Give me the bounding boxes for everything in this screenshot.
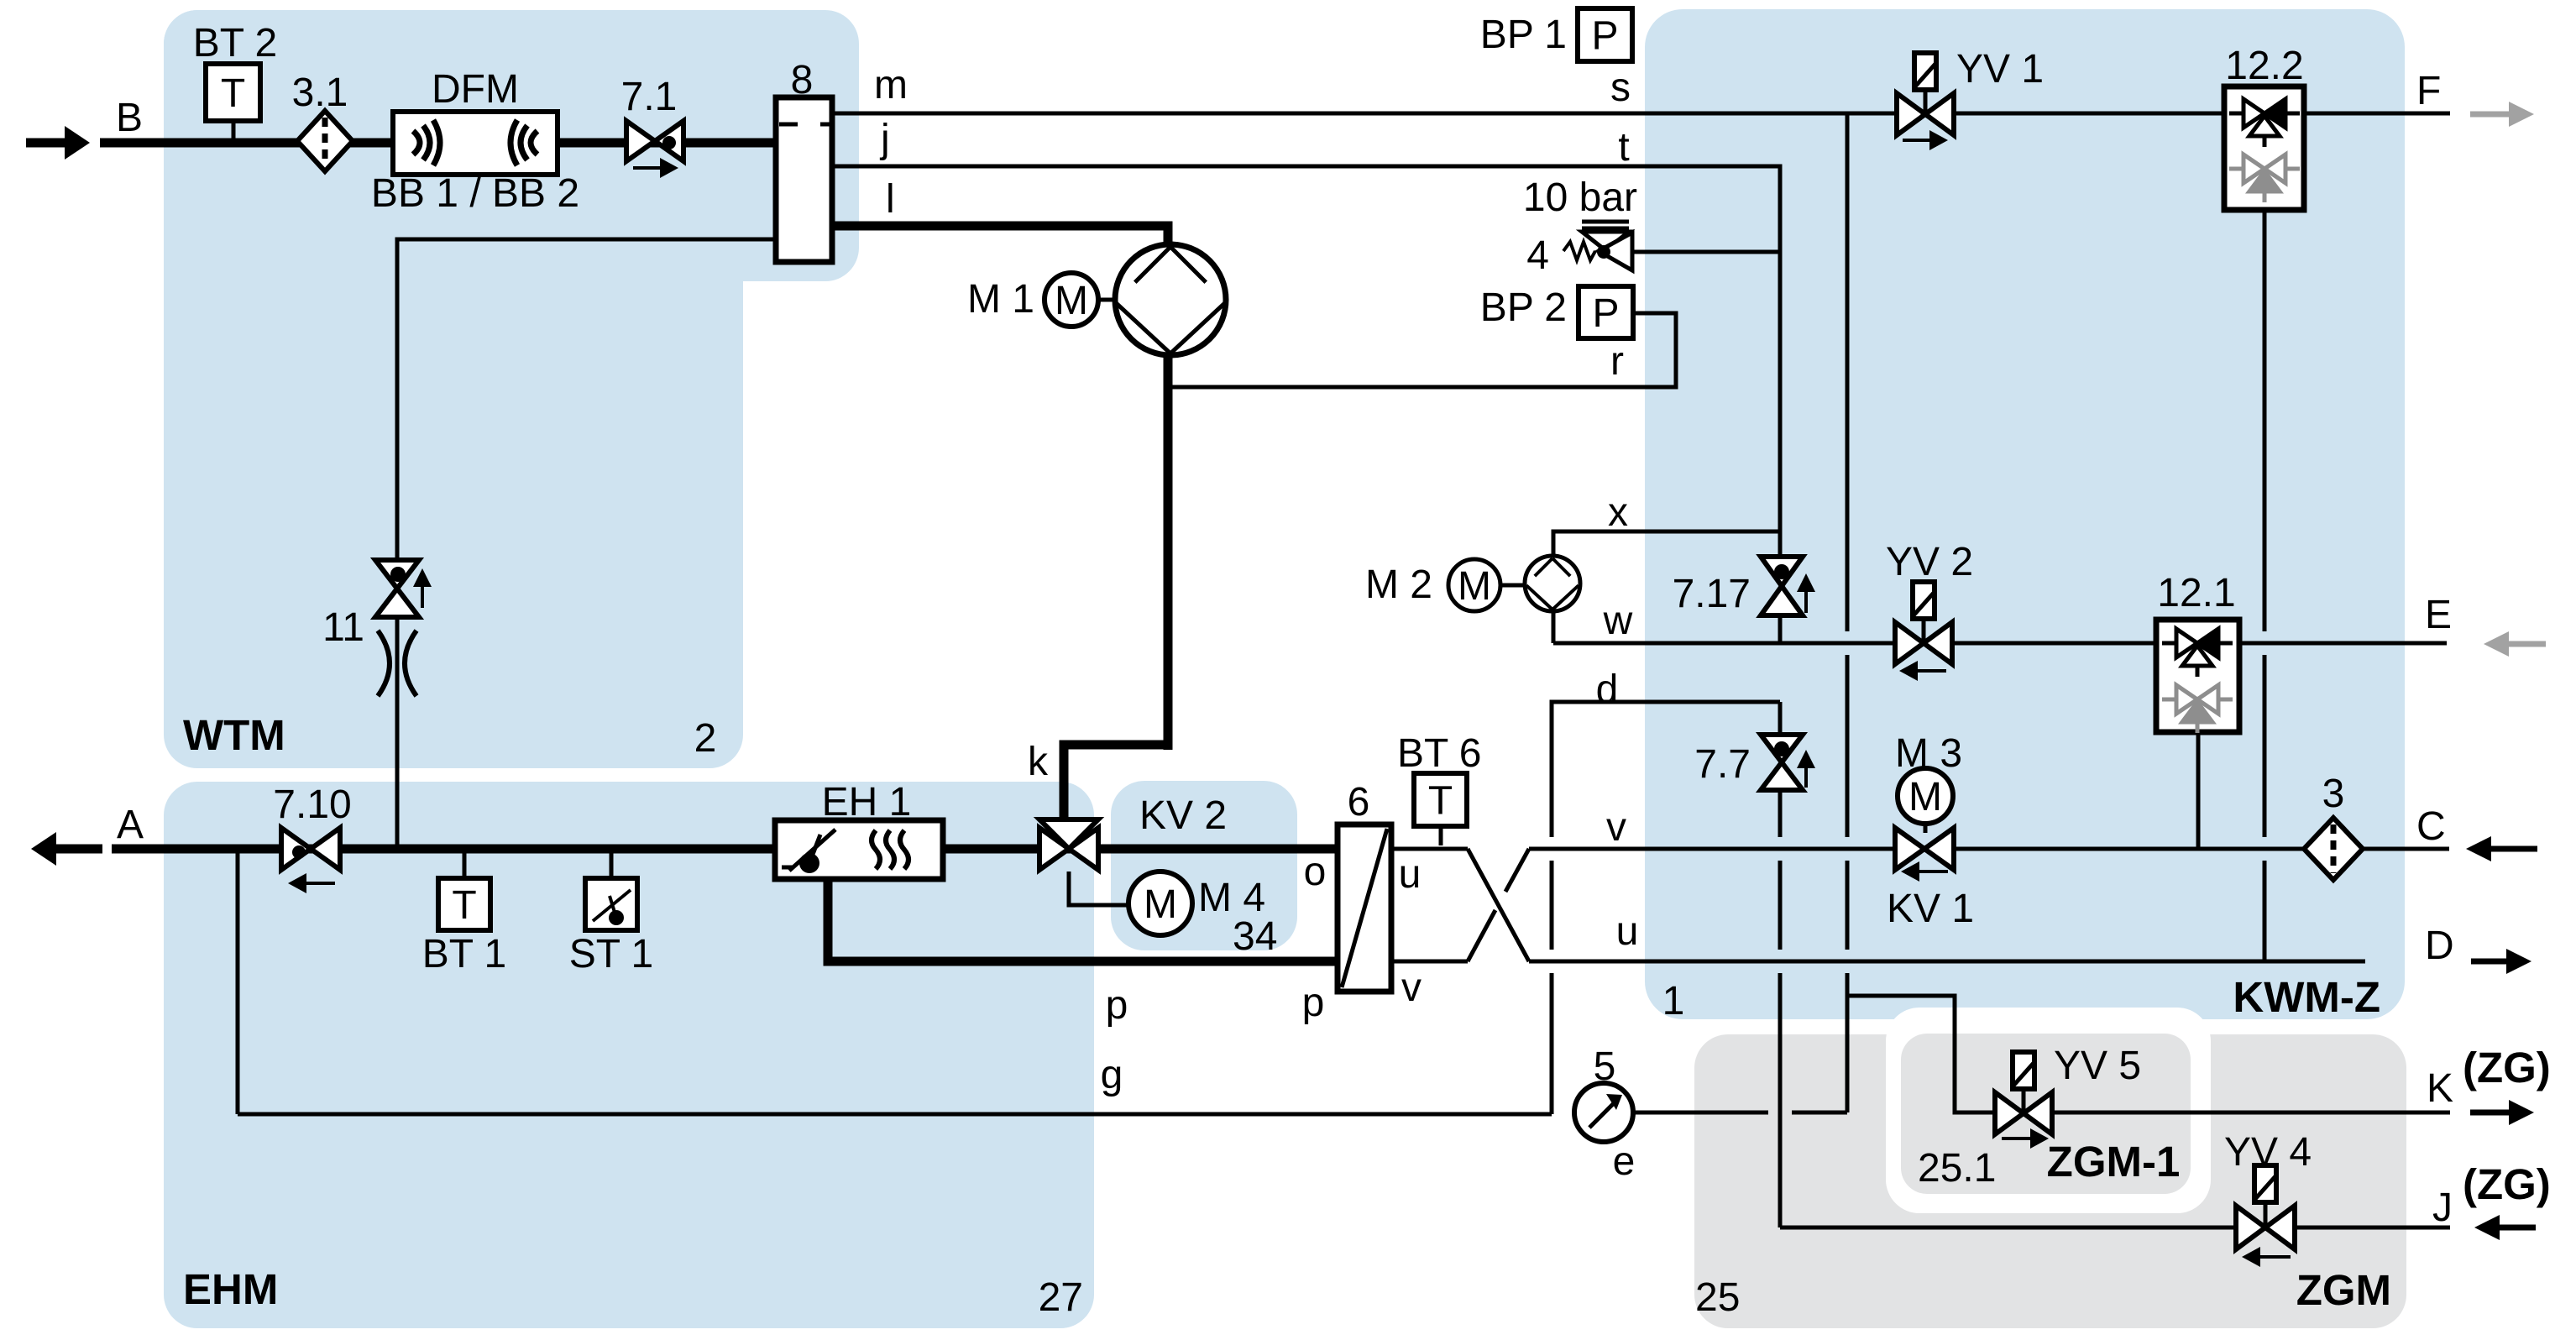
svg-text:m: m [874,63,908,107]
svg-text:4: 4 [1526,233,1549,278]
svg-text:WTM: WTM [183,711,285,759]
svg-text:M: M [1144,882,1177,927]
svg-text:DFM: DFM [432,67,519,112]
svg-text:EHM: EHM [183,1265,278,1313]
svg-text:w: w [1603,599,1633,643]
svg-text:KWM-Z: KWM-Z [2233,973,2380,1021]
svg-text:u: u [1399,852,1422,897]
svg-text:x: x [1608,490,1628,535]
svg-text:E: E [2425,593,2452,637]
svg-text:M 3: M 3 [1895,731,1962,776]
svg-text:e: e [1613,1139,1636,1184]
svg-text:l: l [886,177,895,222]
svg-text:7.1: 7.1 [621,75,678,119]
svg-text:u: u [1616,909,1639,954]
svg-text:j: j [879,117,890,161]
svg-text:M 1: M 1 [967,277,1034,322]
svg-text:B: B [116,96,143,140]
svg-text:8: 8 [791,58,814,102]
svg-text:P: P [1592,291,1619,336]
svg-text:12.1: 12.1 [2157,571,2235,615]
svg-text:2: 2 [694,716,717,761]
svg-text:1: 1 [1662,979,1685,1023]
svg-text:BT 6: BT 6 [1397,731,1482,776]
svg-text:25.1: 25.1 [1918,1146,1996,1191]
svg-text:(ZG): (ZG) [2463,1160,2551,1208]
svg-text:BP 2: BP 2 [1480,285,1567,330]
svg-text:J: J [2432,1186,2453,1230]
svg-text:M: M [1458,564,1491,609]
svg-text:M: M [1055,279,1088,323]
svg-text:KV 1: KV 1 [1887,887,1974,931]
svg-text:(ZG): (ZG) [2463,1044,2551,1091]
svg-text:YV 4: YV 4 [2224,1130,2312,1175]
svg-text:27: 27 [1039,1275,1083,1320]
svg-text:g: g [1101,1053,1123,1097]
svg-text:M 2: M 2 [1365,563,1432,607]
svg-text:7.17: 7.17 [1673,572,1751,616]
svg-text:T: T [221,71,245,116]
svg-text:ST 1: ST 1 [569,932,654,976]
svg-text:10 bar: 10 bar [1523,175,1637,220]
svg-text:p: p [1106,983,1128,1028]
svg-text:K: K [2427,1066,2453,1111]
svg-text:34: 34 [1233,914,1277,959]
svg-text:ZGM-1: ZGM-1 [2047,1138,2181,1186]
svg-text:BP 1: BP 1 [1480,13,1567,57]
svg-text:ZGM: ZGM [2296,1266,2391,1314]
svg-text:D: D [2425,924,2454,968]
svg-text:C: C [2416,804,2446,849]
svg-text:t: t [1618,125,1629,170]
svg-text:11: 11 [322,605,364,650]
svg-text:T: T [452,883,476,928]
svg-text:k: k [1028,740,1049,784]
svg-text:P: P [1591,14,1618,59]
svg-text:7.7: 7.7 [1694,742,1751,787]
svg-text:v: v [1606,805,1626,850]
svg-text:EH 1: EH 1 [822,780,912,824]
svg-text:BT 2: BT 2 [193,21,278,65]
svg-text:YV 1: YV 1 [1956,47,2044,92]
svg-text:KV 2: KV 2 [1139,793,1227,838]
svg-text:BT 1: BT 1 [422,932,507,976]
svg-text:p: p [1302,981,1325,1025]
svg-text:6: 6 [1348,780,1370,824]
svg-text:5: 5 [1594,1044,1616,1089]
svg-text:BB 1 / BB 2: BB 1 / BB 2 [371,171,579,216]
svg-text:v: v [1401,966,1422,1010]
svg-text:r: r [1610,339,1624,384]
svg-text:YV 2: YV 2 [1886,540,1973,584]
svg-text:3: 3 [2322,772,2345,816]
svg-text:25: 25 [1695,1275,1740,1320]
svg-text:T: T [1428,779,1453,824]
svg-text:12.2: 12.2 [2225,44,2303,88]
svg-text:3.1: 3.1 [292,71,348,115]
svg-text:s: s [1610,65,1631,110]
svg-text:d: d [1596,667,1619,712]
svg-text:M: M [1908,775,1942,819]
svg-text:YV 5: YV 5 [2054,1044,2141,1088]
svg-text:F: F [2416,69,2441,113]
svg-text:7.10: 7.10 [273,783,351,827]
svg-text:o: o [1304,850,1327,894]
svg-text:A: A [117,803,144,847]
